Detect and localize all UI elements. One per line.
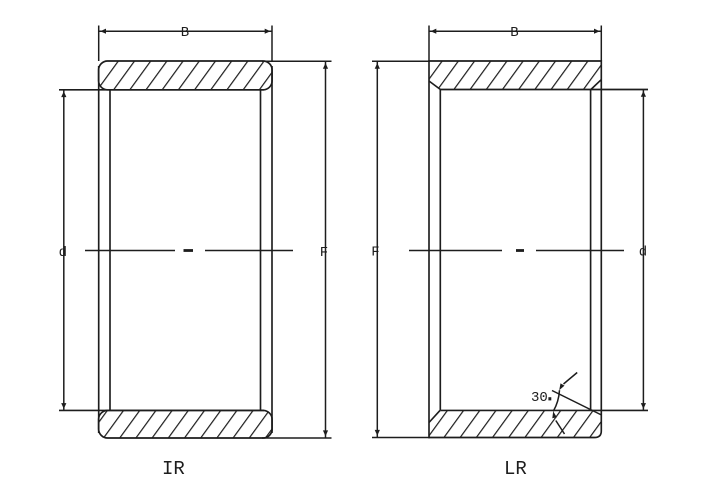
svg-text:B: B: [181, 25, 189, 41]
svg-text:30: 30: [531, 390, 548, 406]
svg-text:d: d: [639, 245, 647, 261]
svg-text:B: B: [510, 25, 518, 41]
svg-text:IR: IR: [162, 458, 185, 480]
svg-text:F: F: [320, 245, 328, 261]
svg-text:LR: LR: [504, 458, 527, 480]
svg-text:d: d: [59, 245, 67, 261]
svg-text:F: F: [371, 245, 379, 261]
